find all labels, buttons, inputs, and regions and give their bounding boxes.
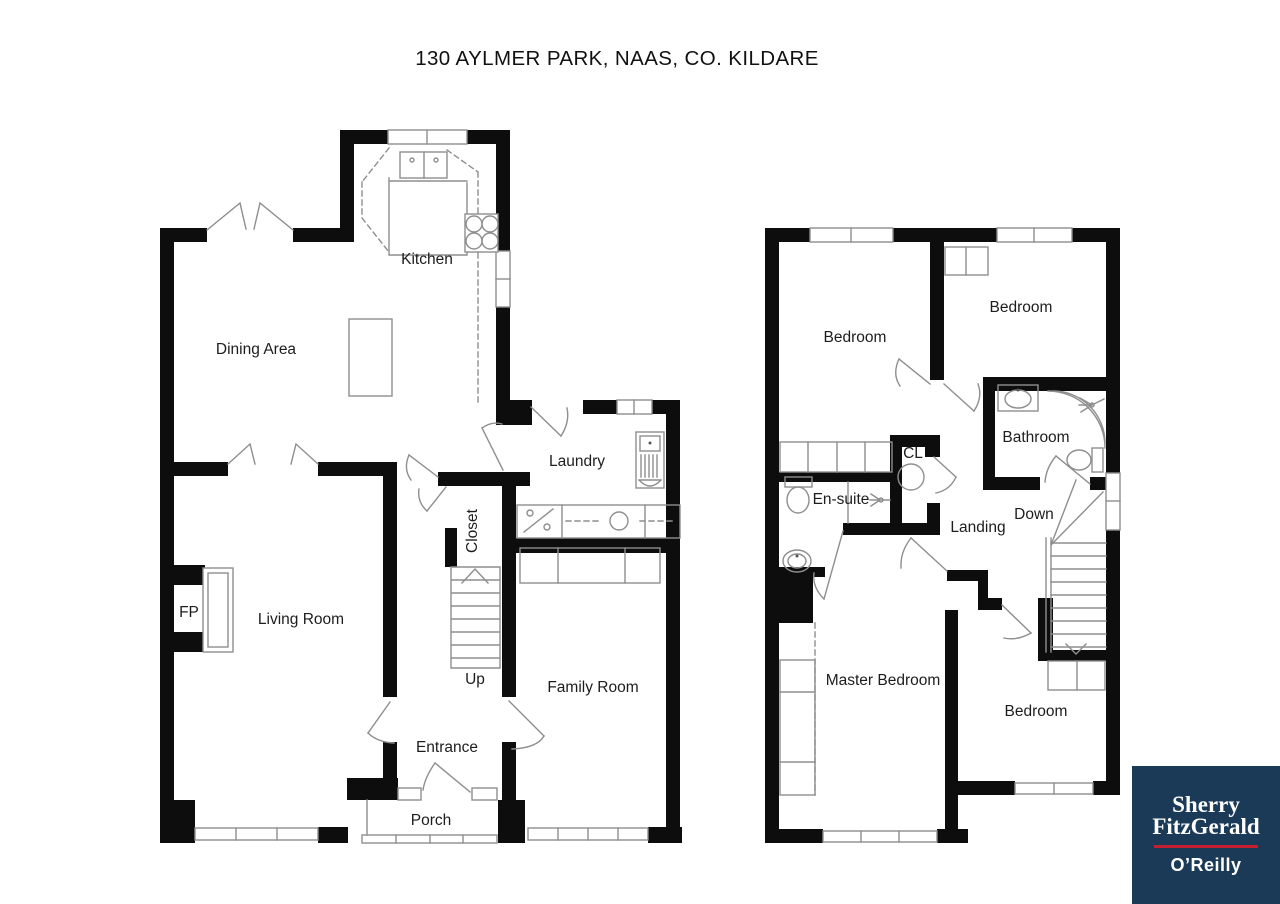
logo-rule (1154, 845, 1258, 848)
kitchen-window (388, 130, 467, 144)
family-room-cabinets (520, 548, 660, 583)
floorplan-page: { "title": "130 AYLMER PARK, NAAS, CO. K… (0, 0, 1280, 904)
room-label-family: Family Room (547, 679, 638, 696)
ensuite-toilet (785, 477, 812, 513)
dining-table (349, 319, 392, 396)
bedroom1-wardrobe (780, 442, 892, 472)
washing-machine (636, 432, 664, 488)
hall-door (406, 455, 438, 480)
kitchen-side-window (496, 251, 510, 307)
master-wardrobe (780, 660, 815, 795)
closet-door (419, 487, 446, 511)
kitchen-hall-door (482, 423, 503, 470)
room-label-entrance: Entrance (416, 739, 478, 756)
bedroom3-door (1002, 605, 1031, 639)
kitchen-sink (400, 152, 447, 178)
room-label-stairs-up: Up (465, 671, 485, 688)
bedroom3-window (1015, 783, 1093, 794)
room-label-bedroom2: Bedroom (990, 299, 1053, 316)
laundry-sink (610, 512, 628, 530)
ground-floor-windows (195, 130, 652, 843)
porch-window (362, 835, 497, 843)
bedroom1-door (896, 359, 930, 386)
first-floor-walls (765, 228, 1120, 843)
bedroom2-closet (945, 247, 988, 275)
hob (465, 214, 498, 252)
cl-door (934, 457, 956, 493)
stairs-down (1046, 480, 1106, 654)
room-label-cl: CL (903, 445, 923, 462)
family-room-window (528, 828, 648, 840)
logo-line2: FitzGerald (1152, 816, 1259, 838)
patio-doors (254, 203, 293, 230)
laundry-window (617, 400, 652, 414)
first-floor-plan: Bedroom Bedroom Bathroom En-suite CL Lan… (765, 228, 1120, 843)
ground-floor-walls (160, 130, 682, 843)
room-label-laundry: Laundry (549, 453, 605, 470)
dining-double-doors (228, 444, 255, 464)
master-door (901, 538, 947, 571)
room-label-landing: Landing (950, 519, 1005, 536)
family-room-door (509, 701, 544, 749)
room-label-dining: Dining Area (216, 341, 297, 358)
ground-floor-plan: Kitchen Dining Area Laundry Closet FP Li… (160, 130, 682, 843)
laundry-counter (517, 505, 680, 538)
master-window (823, 831, 937, 842)
living-room-window (195, 828, 318, 840)
room-label-master: Master Bedroom (826, 672, 941, 689)
living-room-door (368, 702, 394, 743)
laundry-door (531, 407, 568, 436)
room-label-closet: Closet (464, 508, 481, 553)
ensuite-shower-symbol (870, 494, 890, 506)
logo-office: O’Reilly (1170, 855, 1241, 876)
room-label-bathroom: Bathroom (1002, 429, 1069, 446)
room-label-kitchen: Kitchen (401, 251, 453, 268)
logo-line1: Sherry (1172, 794, 1240, 816)
patio-doors (207, 203, 246, 230)
stairwell-window (1106, 473, 1120, 530)
bedroom1-window (810, 228, 893, 242)
room-label-fireplace: FP (179, 604, 199, 621)
floor-plans: Kitchen Dining Area Laundry Closet FP Li… (0, 0, 1280, 904)
front-door-sidelights (398, 788, 497, 800)
room-label-stairs-down: Down (1014, 506, 1054, 523)
fireplace-hearth (203, 568, 233, 652)
bedroom2-window (997, 228, 1072, 242)
room-label-living: Living Room (258, 611, 344, 628)
room-label-ensuite: En-suite (813, 491, 870, 508)
bathroom-toilet (1067, 448, 1103, 472)
understairs-closet (1048, 661, 1105, 690)
room-label-bedroom3: Bedroom (1005, 703, 1068, 720)
stairs-up (451, 567, 500, 668)
ensuite-door (814, 531, 843, 599)
room-label-bedroom1: Bedroom (824, 329, 887, 346)
ensuite-sink (783, 550, 811, 572)
front-door (423, 763, 470, 792)
room-label-porch: Porch (411, 812, 452, 829)
bedroom2-door (944, 384, 980, 411)
dining-double-doors (291, 444, 318, 464)
agency-logo: Sherry FitzGerald O’Reilly (1132, 766, 1280, 904)
